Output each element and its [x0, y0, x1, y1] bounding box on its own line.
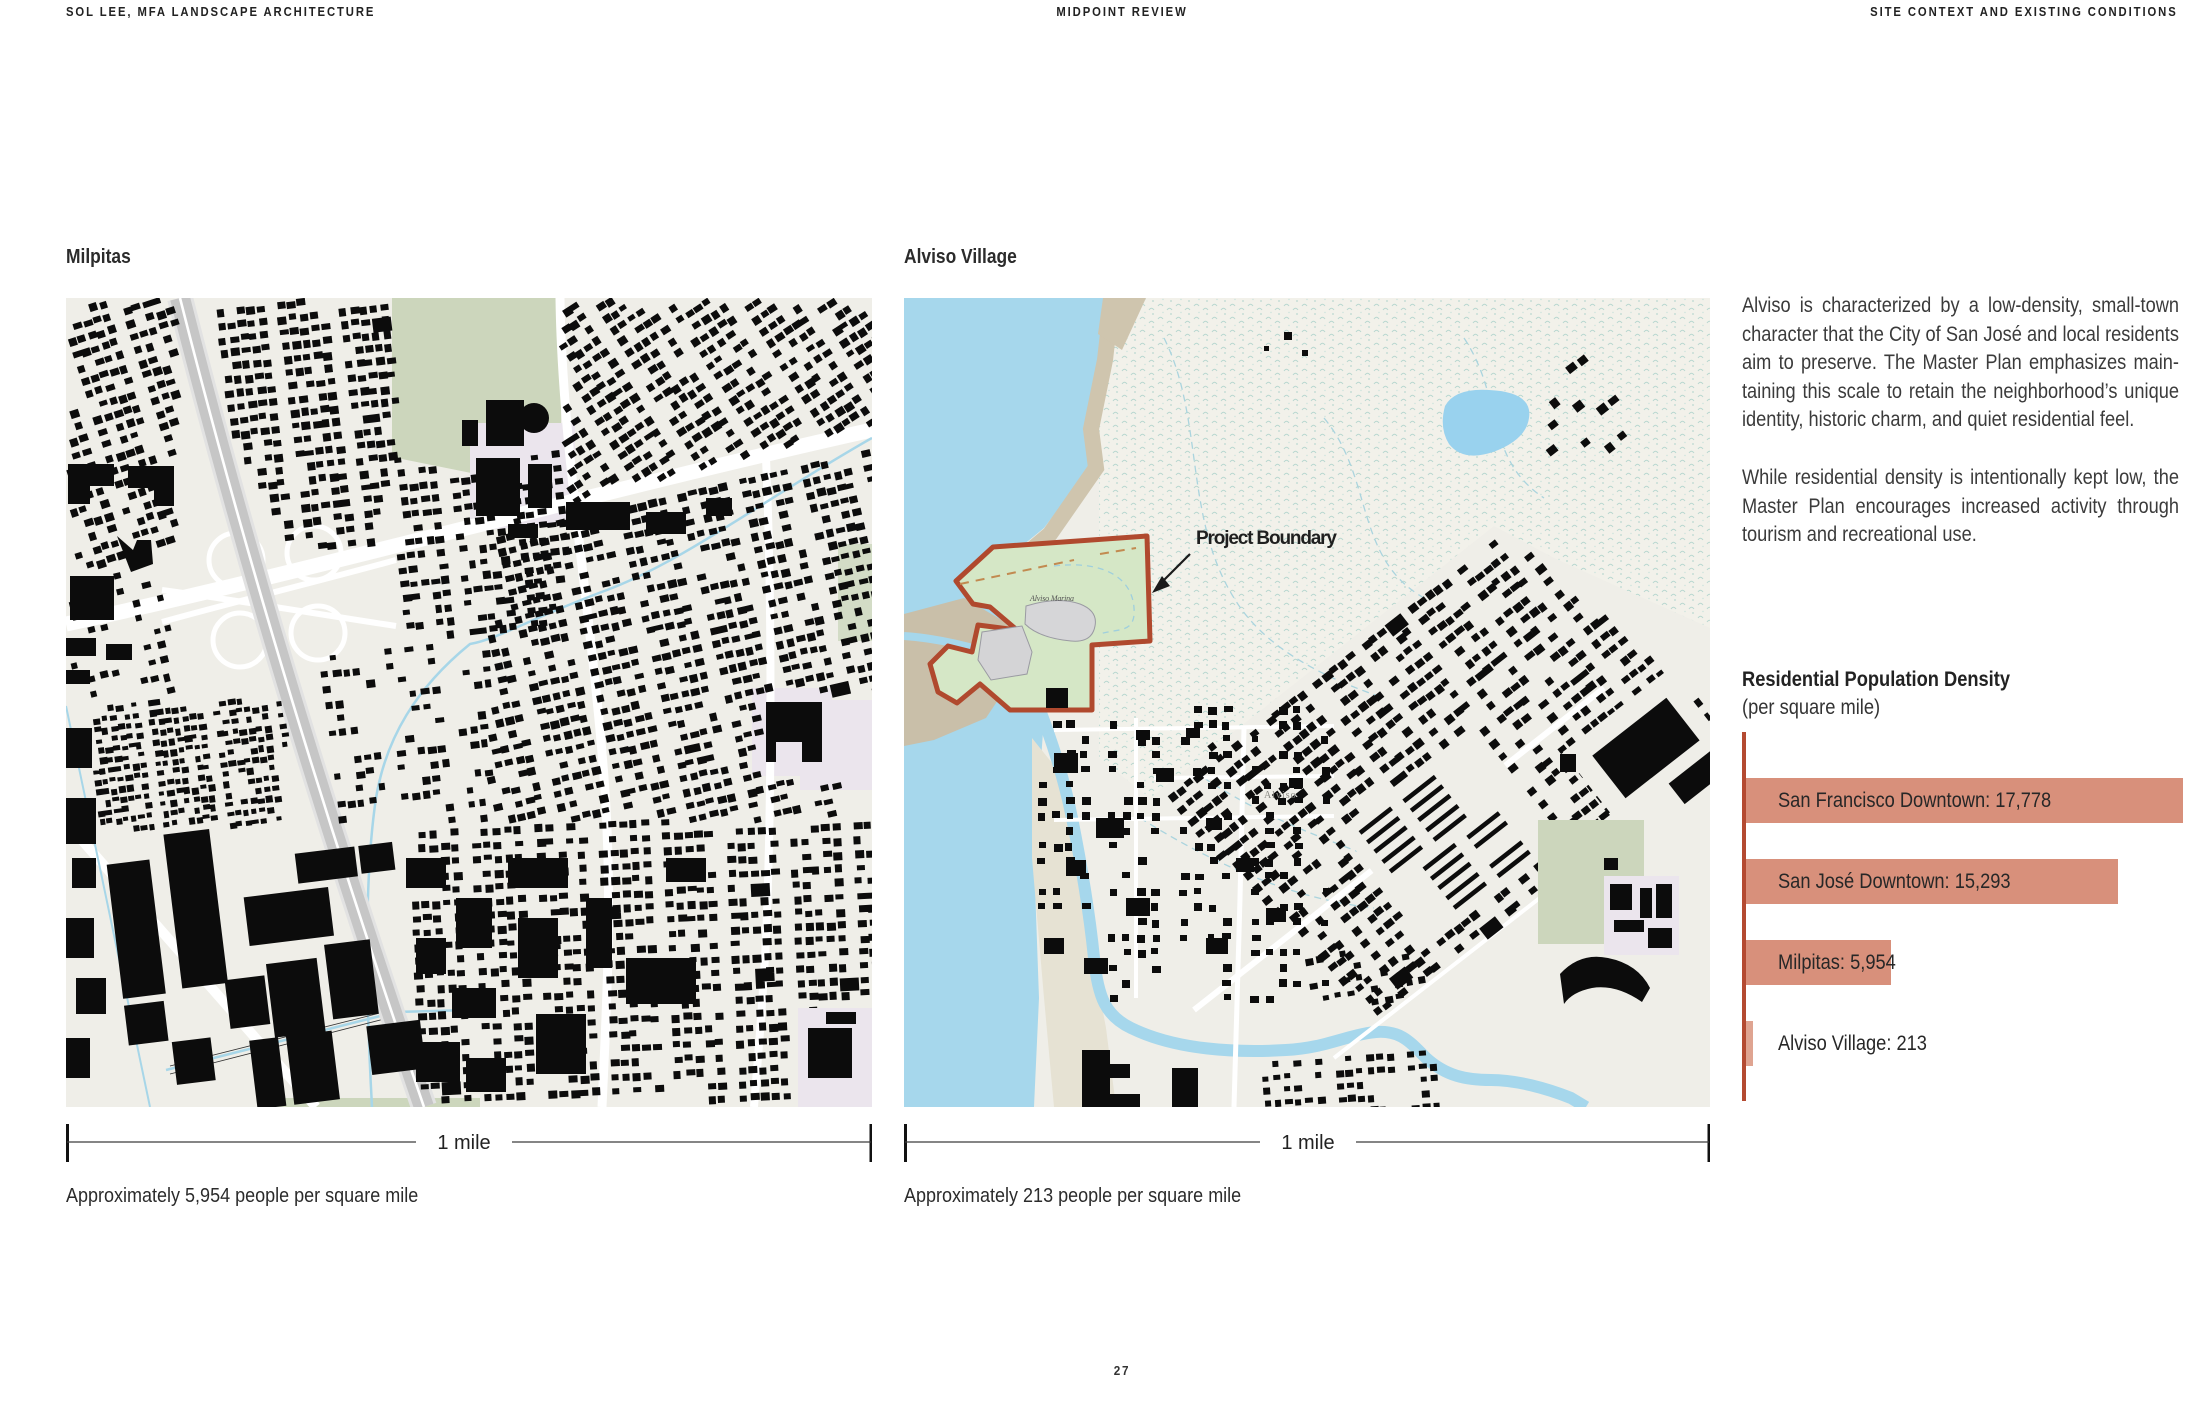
svg-text:1 mile: 1 mile — [1281, 1132, 1334, 1154]
svg-text:1 mile: 1 mile — [437, 1132, 490, 1154]
svg-text:Project Boundary: Project Boundary — [1196, 528, 1337, 549]
svg-text:Alviso: Alviso — [1264, 790, 1297, 801]
svg-text:Alviso Marina: Alviso Marina — [1029, 594, 1074, 603]
